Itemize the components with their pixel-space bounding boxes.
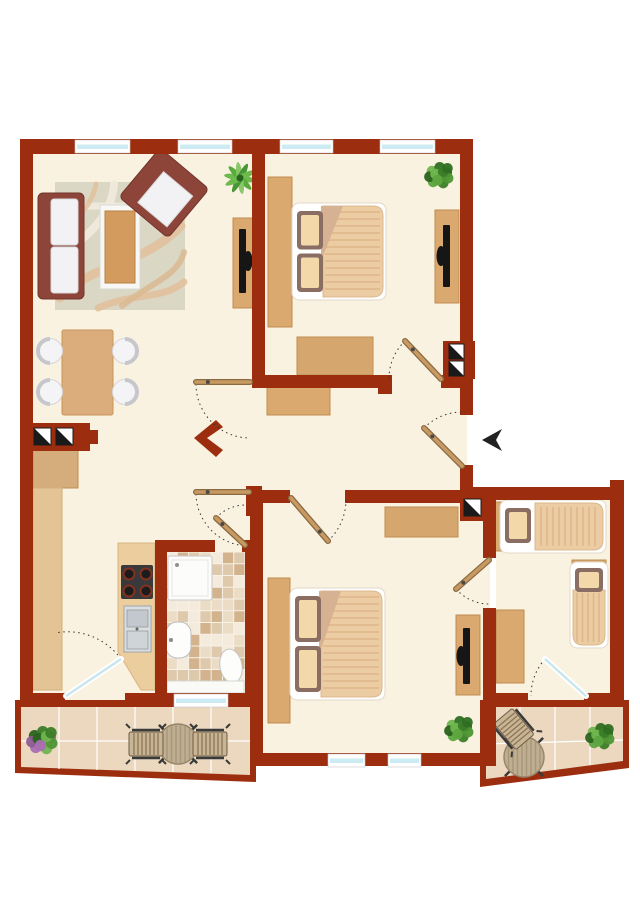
basin-faucet — [169, 638, 173, 642]
window — [174, 694, 228, 707]
wall-shaft-stub-b — [88, 430, 98, 444]
burner — [124, 569, 135, 580]
wall-bd2-east-b — [483, 608, 496, 766]
window — [388, 754, 421, 767]
dining-chair — [38, 339, 63, 364]
bathtub — [167, 681, 244, 693]
sink-basin-small — [127, 610, 148, 627]
wardrobe — [385, 507, 458, 537]
single-bed — [570, 562, 608, 648]
sofa-cushion — [51, 247, 78, 293]
hall-sideboard — [267, 385, 330, 415]
burner — [141, 586, 152, 597]
desk — [496, 610, 524, 683]
shaft-symbol — [464, 499, 481, 516]
wardrobe — [297, 337, 373, 375]
wall-divider — [252, 145, 265, 377]
hall-cabinet-tall — [33, 488, 62, 690]
sink-faucet — [136, 628, 139, 631]
window — [380, 140, 435, 153]
dining-chair — [38, 380, 63, 405]
dining-chair — [113, 380, 138, 405]
bathroom — [166, 552, 245, 693]
floor-plan-canvas — [0, 0, 640, 905]
burner — [141, 569, 152, 580]
shaft-symbol — [449, 344, 464, 359]
shaft-symbol — [56, 428, 73, 445]
hall-cabinet-upper — [33, 450, 78, 488]
hall — [267, 385, 330, 415]
window — [328, 754, 365, 767]
sofa-cushion — [51, 199, 78, 245]
wall-bath-north — [155, 540, 215, 552]
wall-wing-south-b — [584, 693, 624, 707]
garden-chair — [126, 724, 166, 764]
double-bed — [292, 203, 386, 300]
shaft-symbol — [449, 361, 464, 376]
wall-wing-south-a — [483, 693, 528, 707]
headboard-strip — [268, 578, 290, 723]
window — [178, 140, 232, 153]
window — [280, 140, 333, 153]
dining-table — [62, 330, 113, 415]
shower-drain — [175, 563, 179, 567]
wall-bed1-stub — [378, 386, 392, 394]
shaft-symbol — [34, 428, 51, 445]
sink-basin-large — [127, 631, 148, 649]
wall-bottom-a — [20, 693, 65, 707]
garden-table — [158, 724, 198, 764]
burner — [124, 586, 135, 597]
wall-bath-east — [245, 540, 257, 695]
floors — [0, 0, 640, 905]
coffee-table-top — [105, 211, 135, 283]
wall-bath-west — [155, 540, 167, 695]
dining-chair — [113, 339, 138, 364]
floor-plan — [0, 0, 640, 905]
wall-wing-east — [610, 480, 624, 707]
side-board — [268, 177, 292, 327]
wall-bed1-south — [252, 375, 392, 388]
wall-bd2-south — [250, 753, 496, 766]
double-bed — [290, 588, 385, 700]
window — [75, 140, 130, 153]
garden-chair — [190, 724, 230, 764]
shower — [168, 556, 212, 600]
single-bed — [500, 500, 606, 553]
